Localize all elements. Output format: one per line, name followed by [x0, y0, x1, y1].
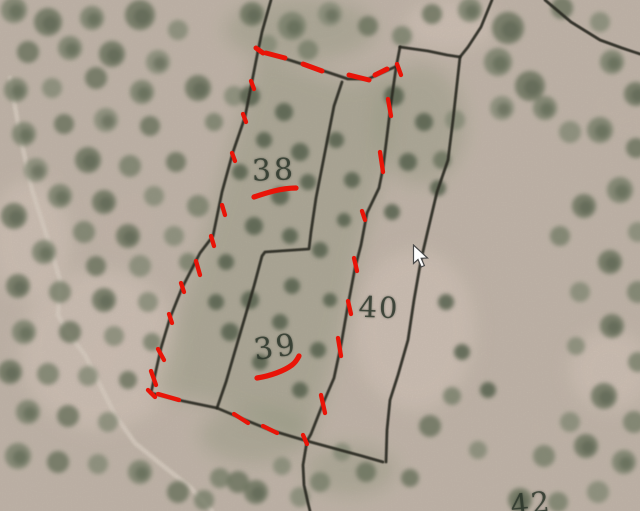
grain-texture [0, 0, 640, 511]
parcel-number-label: 40 [358, 293, 400, 323]
red-boundary-dash [380, 152, 383, 172]
red-boundary-dash [232, 153, 235, 161]
red-boundary-dash [211, 236, 214, 246]
red-boundary-dash [222, 205, 225, 215]
aerial-map-viewport[interactable]: 38 39 40 42 [0, 0, 640, 511]
red-boundary-dash [348, 301, 351, 314]
red-boundary-dash [388, 99, 391, 116]
red-boundary-dash [169, 314, 172, 323]
aerial-imagery-canvas [0, 0, 640, 511]
red-boundary-dash [362, 211, 365, 220]
red-boundary-dash [338, 338, 341, 356]
parcel-number-label: 42 [509, 487, 553, 511]
red-boundary-dash [251, 81, 254, 89]
red-boundary-dash [354, 258, 357, 271]
red-boundary-dash [181, 283, 184, 292]
parcel-number-label: 38 [251, 155, 296, 187]
parcel-number-label: 39 [252, 330, 300, 366]
red-boundary-dash [243, 114, 246, 122]
